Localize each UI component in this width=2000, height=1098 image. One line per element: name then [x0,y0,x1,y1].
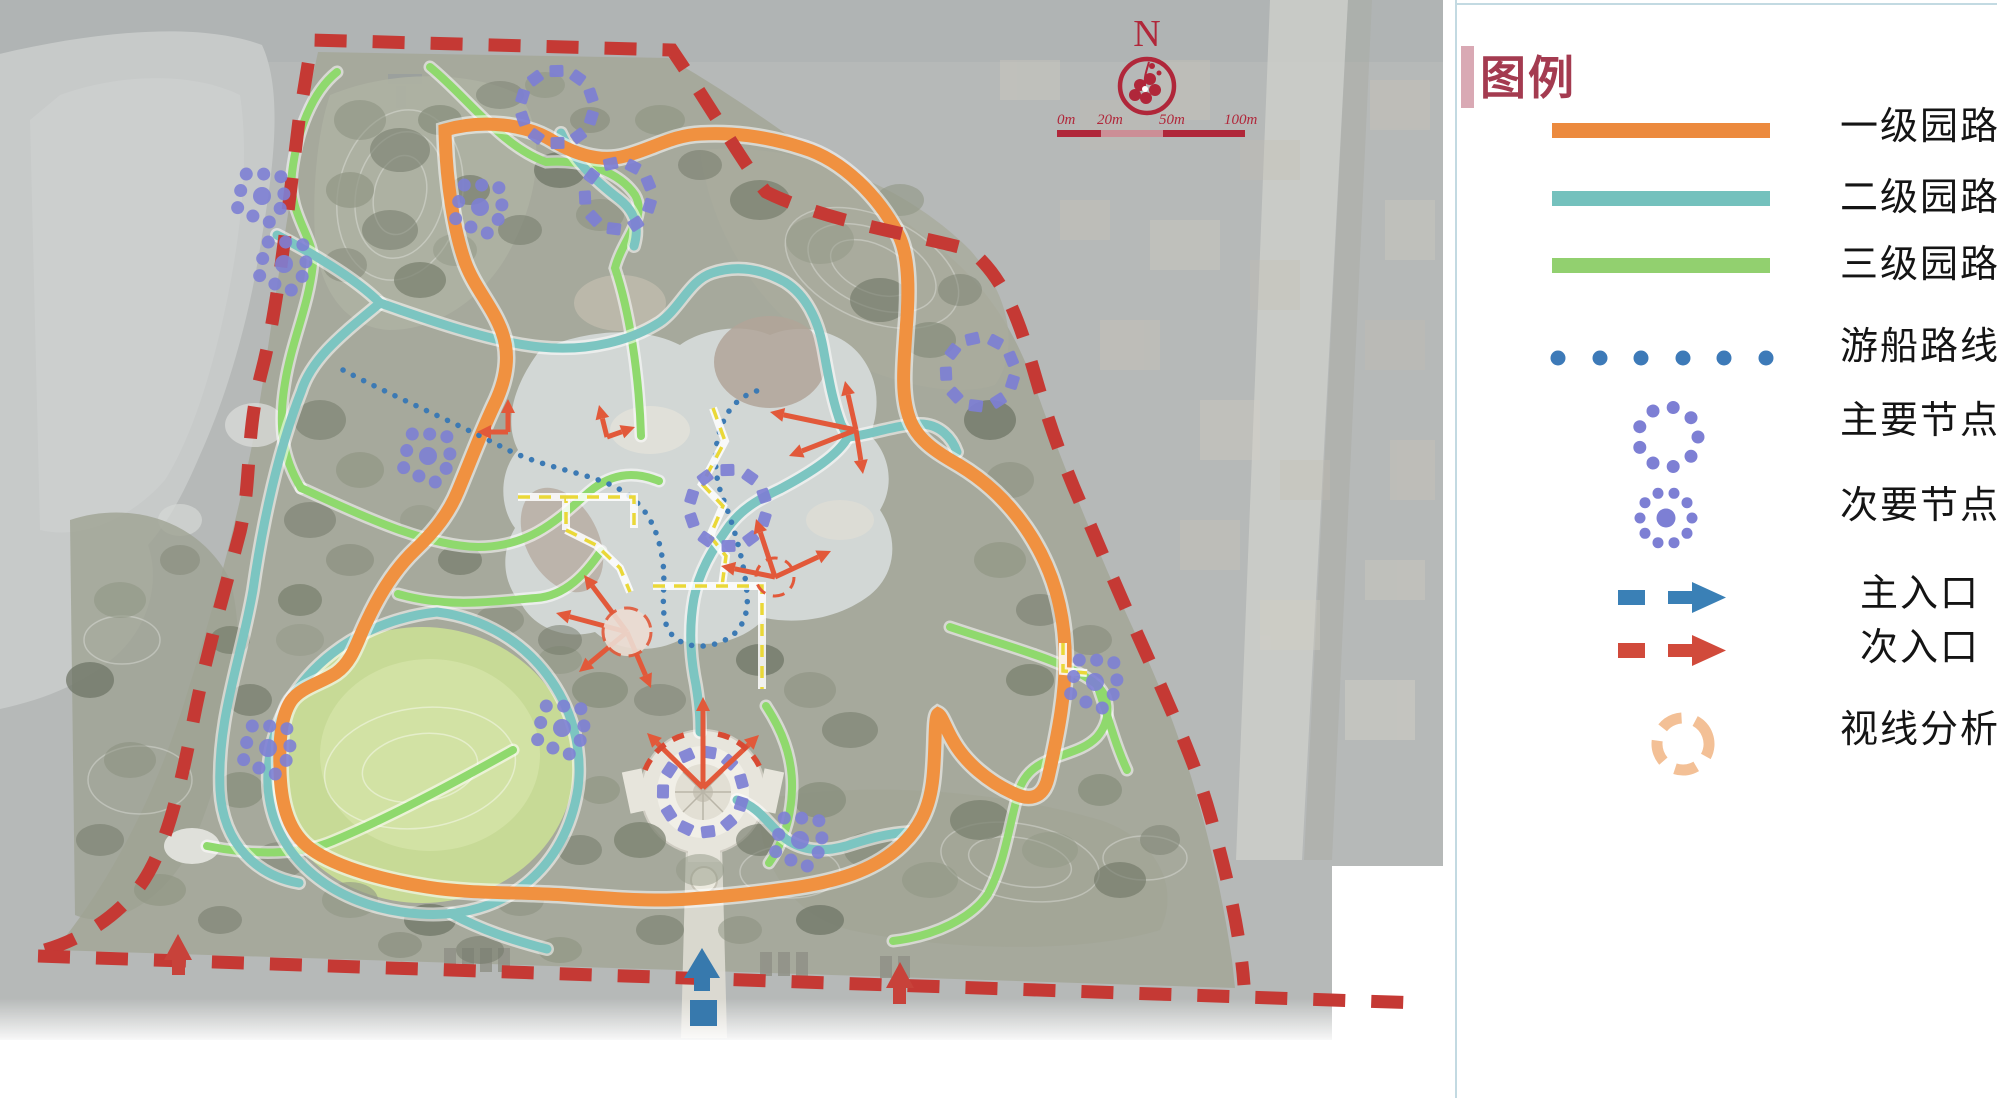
secondary-entrance-swatch [1618,631,1730,671]
svg-text:100m: 100m [1224,112,1258,128]
site-plan-map: N 0m 20m 50m 100m [0,0,1443,1040]
svg-text:20m: 20m [1097,112,1123,128]
legend-label-primary-road: 一级园路 [1800,103,2000,151]
tertiary-road-swatch [1552,258,1770,273]
legend-label-boat-route: 游船路线 [1800,323,2000,371]
aerial-photo [0,0,1443,1040]
main-entrance-swatch [1618,578,1730,618]
secondary-road-swatch [1552,191,1770,206]
sightline-swatch [1648,709,1718,779]
legend-label-tertiary-road: 三级园路 [1800,241,2000,289]
panel-divider [1455,0,1457,1098]
legend-title-accent [1461,46,1474,108]
svg-text:0m: 0m [1057,112,1076,128]
north-label: N [1133,13,1160,55]
viewpoint-island [603,608,651,656]
secondary-node-swatch [1628,480,1704,556]
legend-label-main-node: 主要节点 [1800,397,2000,445]
legend-label-sightline: 视线分析 [1800,706,2000,754]
page: N 0m 20m 50m 100m [0,0,2000,1098]
svg-text:50m: 50m [1159,112,1185,128]
legend-label-main-entrance: 主入口 [1800,570,2000,618]
legend-label-secondary-entrance: 次入口 [1800,624,2000,672]
panel-top-rule [1455,3,1997,5]
legend-label-secondary-road: 二级园路 [1800,174,2000,222]
legend-title: 图例 [1480,42,1576,108]
primary-road-swatch [1552,123,1770,138]
boat-route-swatch [1546,344,1778,372]
main-node-swatch [1630,399,1706,475]
site-plan-canvas: N 0m 20m 50m 100m [0,0,1443,1040]
legend-label-secondary-node: 次要节点 [1800,482,2000,530]
